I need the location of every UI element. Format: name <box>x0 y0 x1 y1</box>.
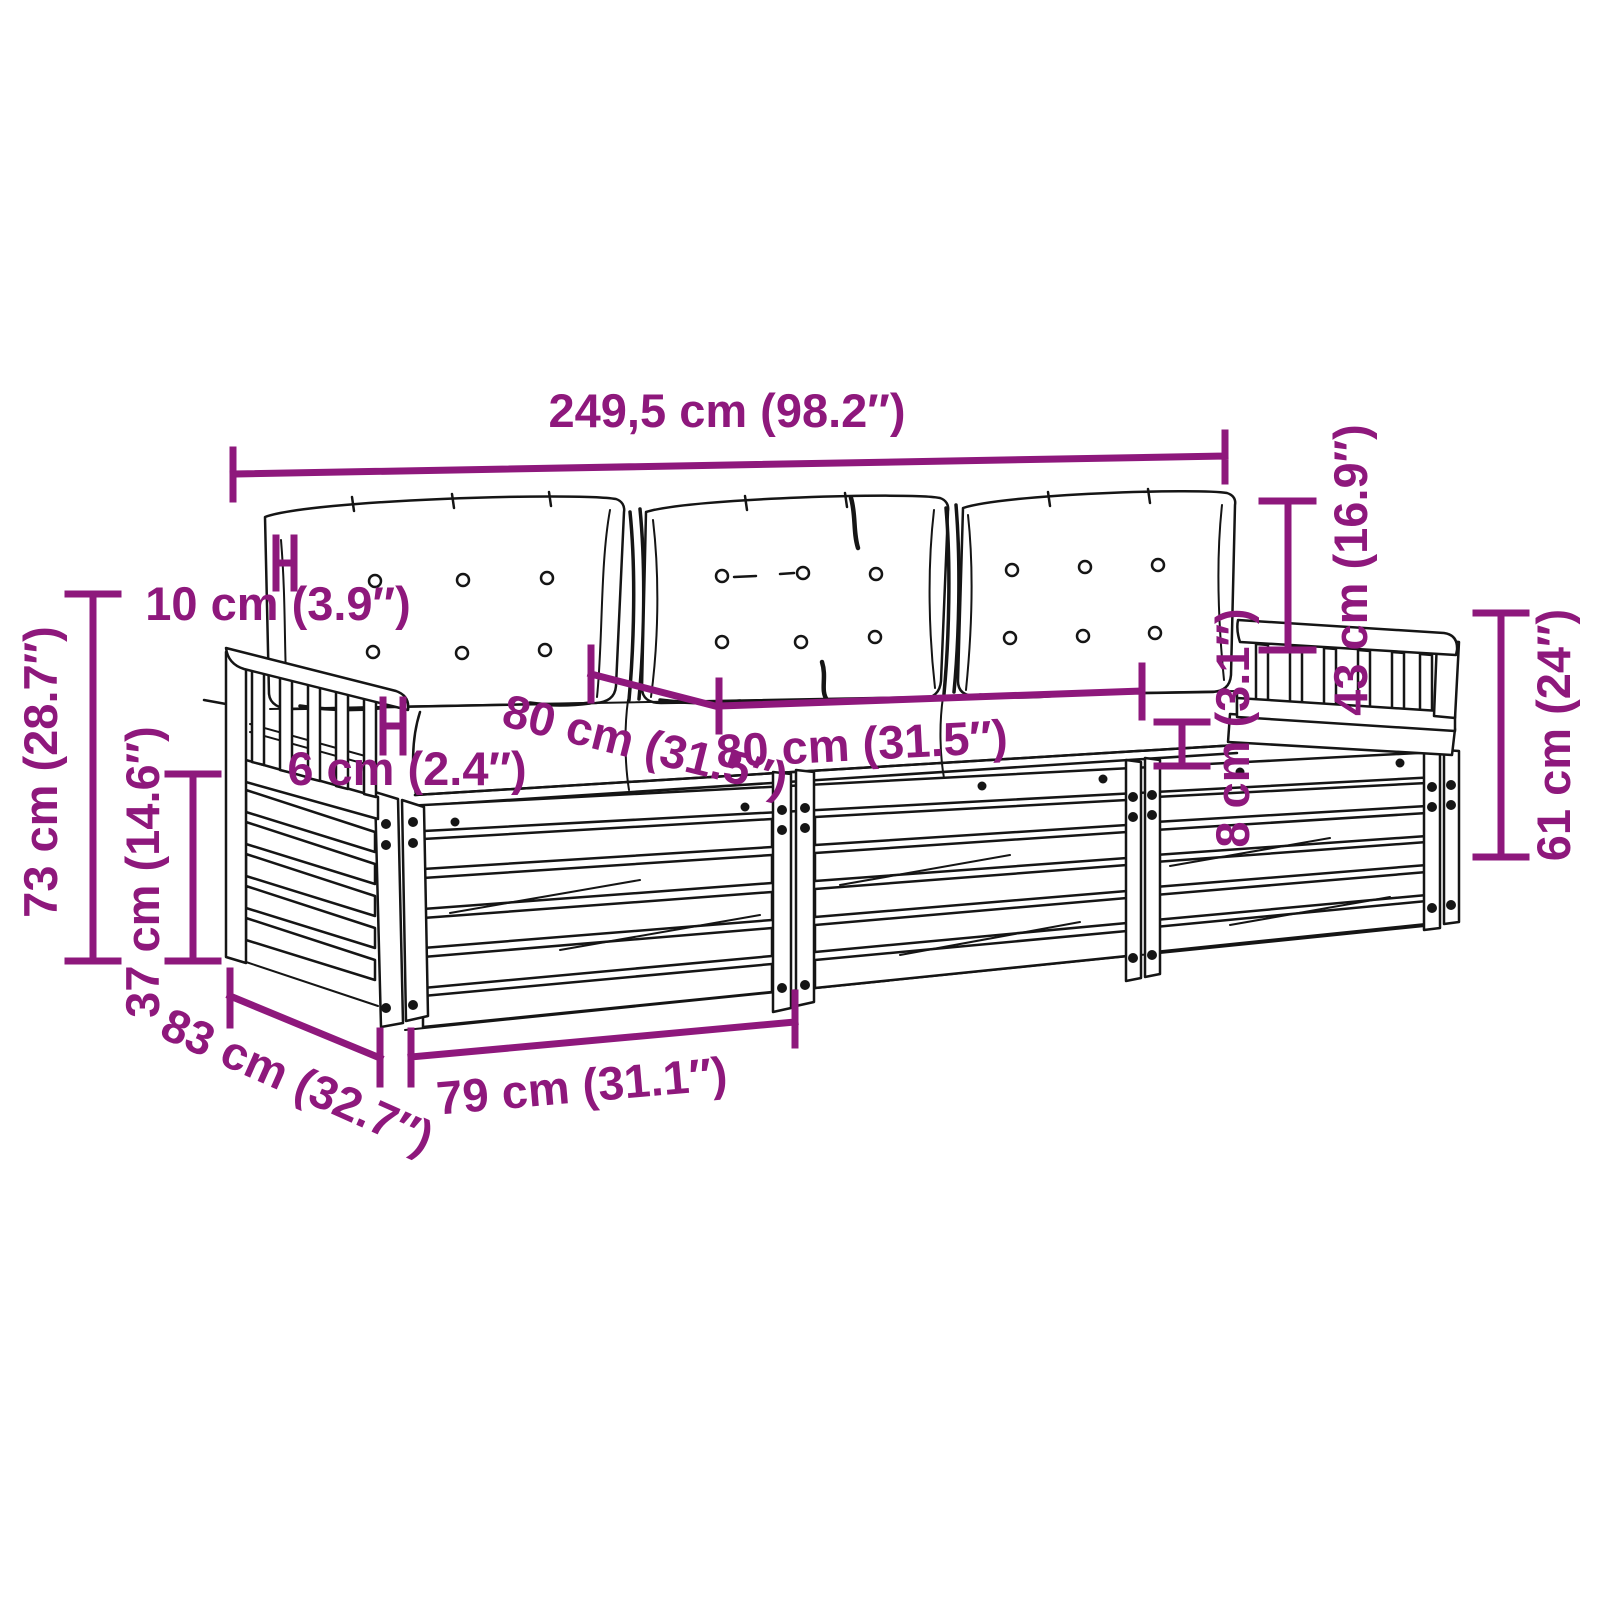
sofa-dimension-diagram: 249,5 cm (98.2″) 73 cm (28.7″) 37 cm (14… <box>0 0 1600 1600</box>
dim-label-seat-width-right: 80 cm (31.5″) <box>715 709 1009 777</box>
base-module-left <box>423 819 772 1027</box>
dim-label-right-side-height: 61 cm (24″) <box>1527 609 1580 861</box>
dim-label-back-height: 73 cm (28.7″) <box>14 626 67 918</box>
dim-label-seat-cushion-thickness: 6 cm (2.4″) <box>287 742 526 795</box>
back-cushion-middle <box>642 493 948 703</box>
dim-label-back-cushion-thickness: 10 cm (3.9″) <box>145 577 410 630</box>
dim-label-total-width: 249,5 cm (98.2″) <box>549 384 906 437</box>
dim-line-base-height <box>168 774 218 961</box>
dim-line-armrest-gap <box>1157 722 1207 766</box>
dim-line-total-width <box>233 433 1225 499</box>
dim-line-back-height <box>68 594 118 961</box>
dim-label-base-height: 37 cm (14.6″) <box>116 726 169 1018</box>
base-module-middle <box>815 800 1127 988</box>
dim-label-armrest-gap-height: 8 cm (3.1″) <box>1206 608 1259 847</box>
dim-label-armrest-height: 43 cm (16.9″) <box>1324 424 1377 716</box>
dim-line-right-height <box>1476 613 1526 857</box>
back-cushion-right <box>958 489 1235 697</box>
dim-label-module-width: 79 cm (31.1″) <box>434 1046 729 1124</box>
cushion-seam <box>944 505 959 694</box>
base-module-right <box>1155 783 1427 952</box>
